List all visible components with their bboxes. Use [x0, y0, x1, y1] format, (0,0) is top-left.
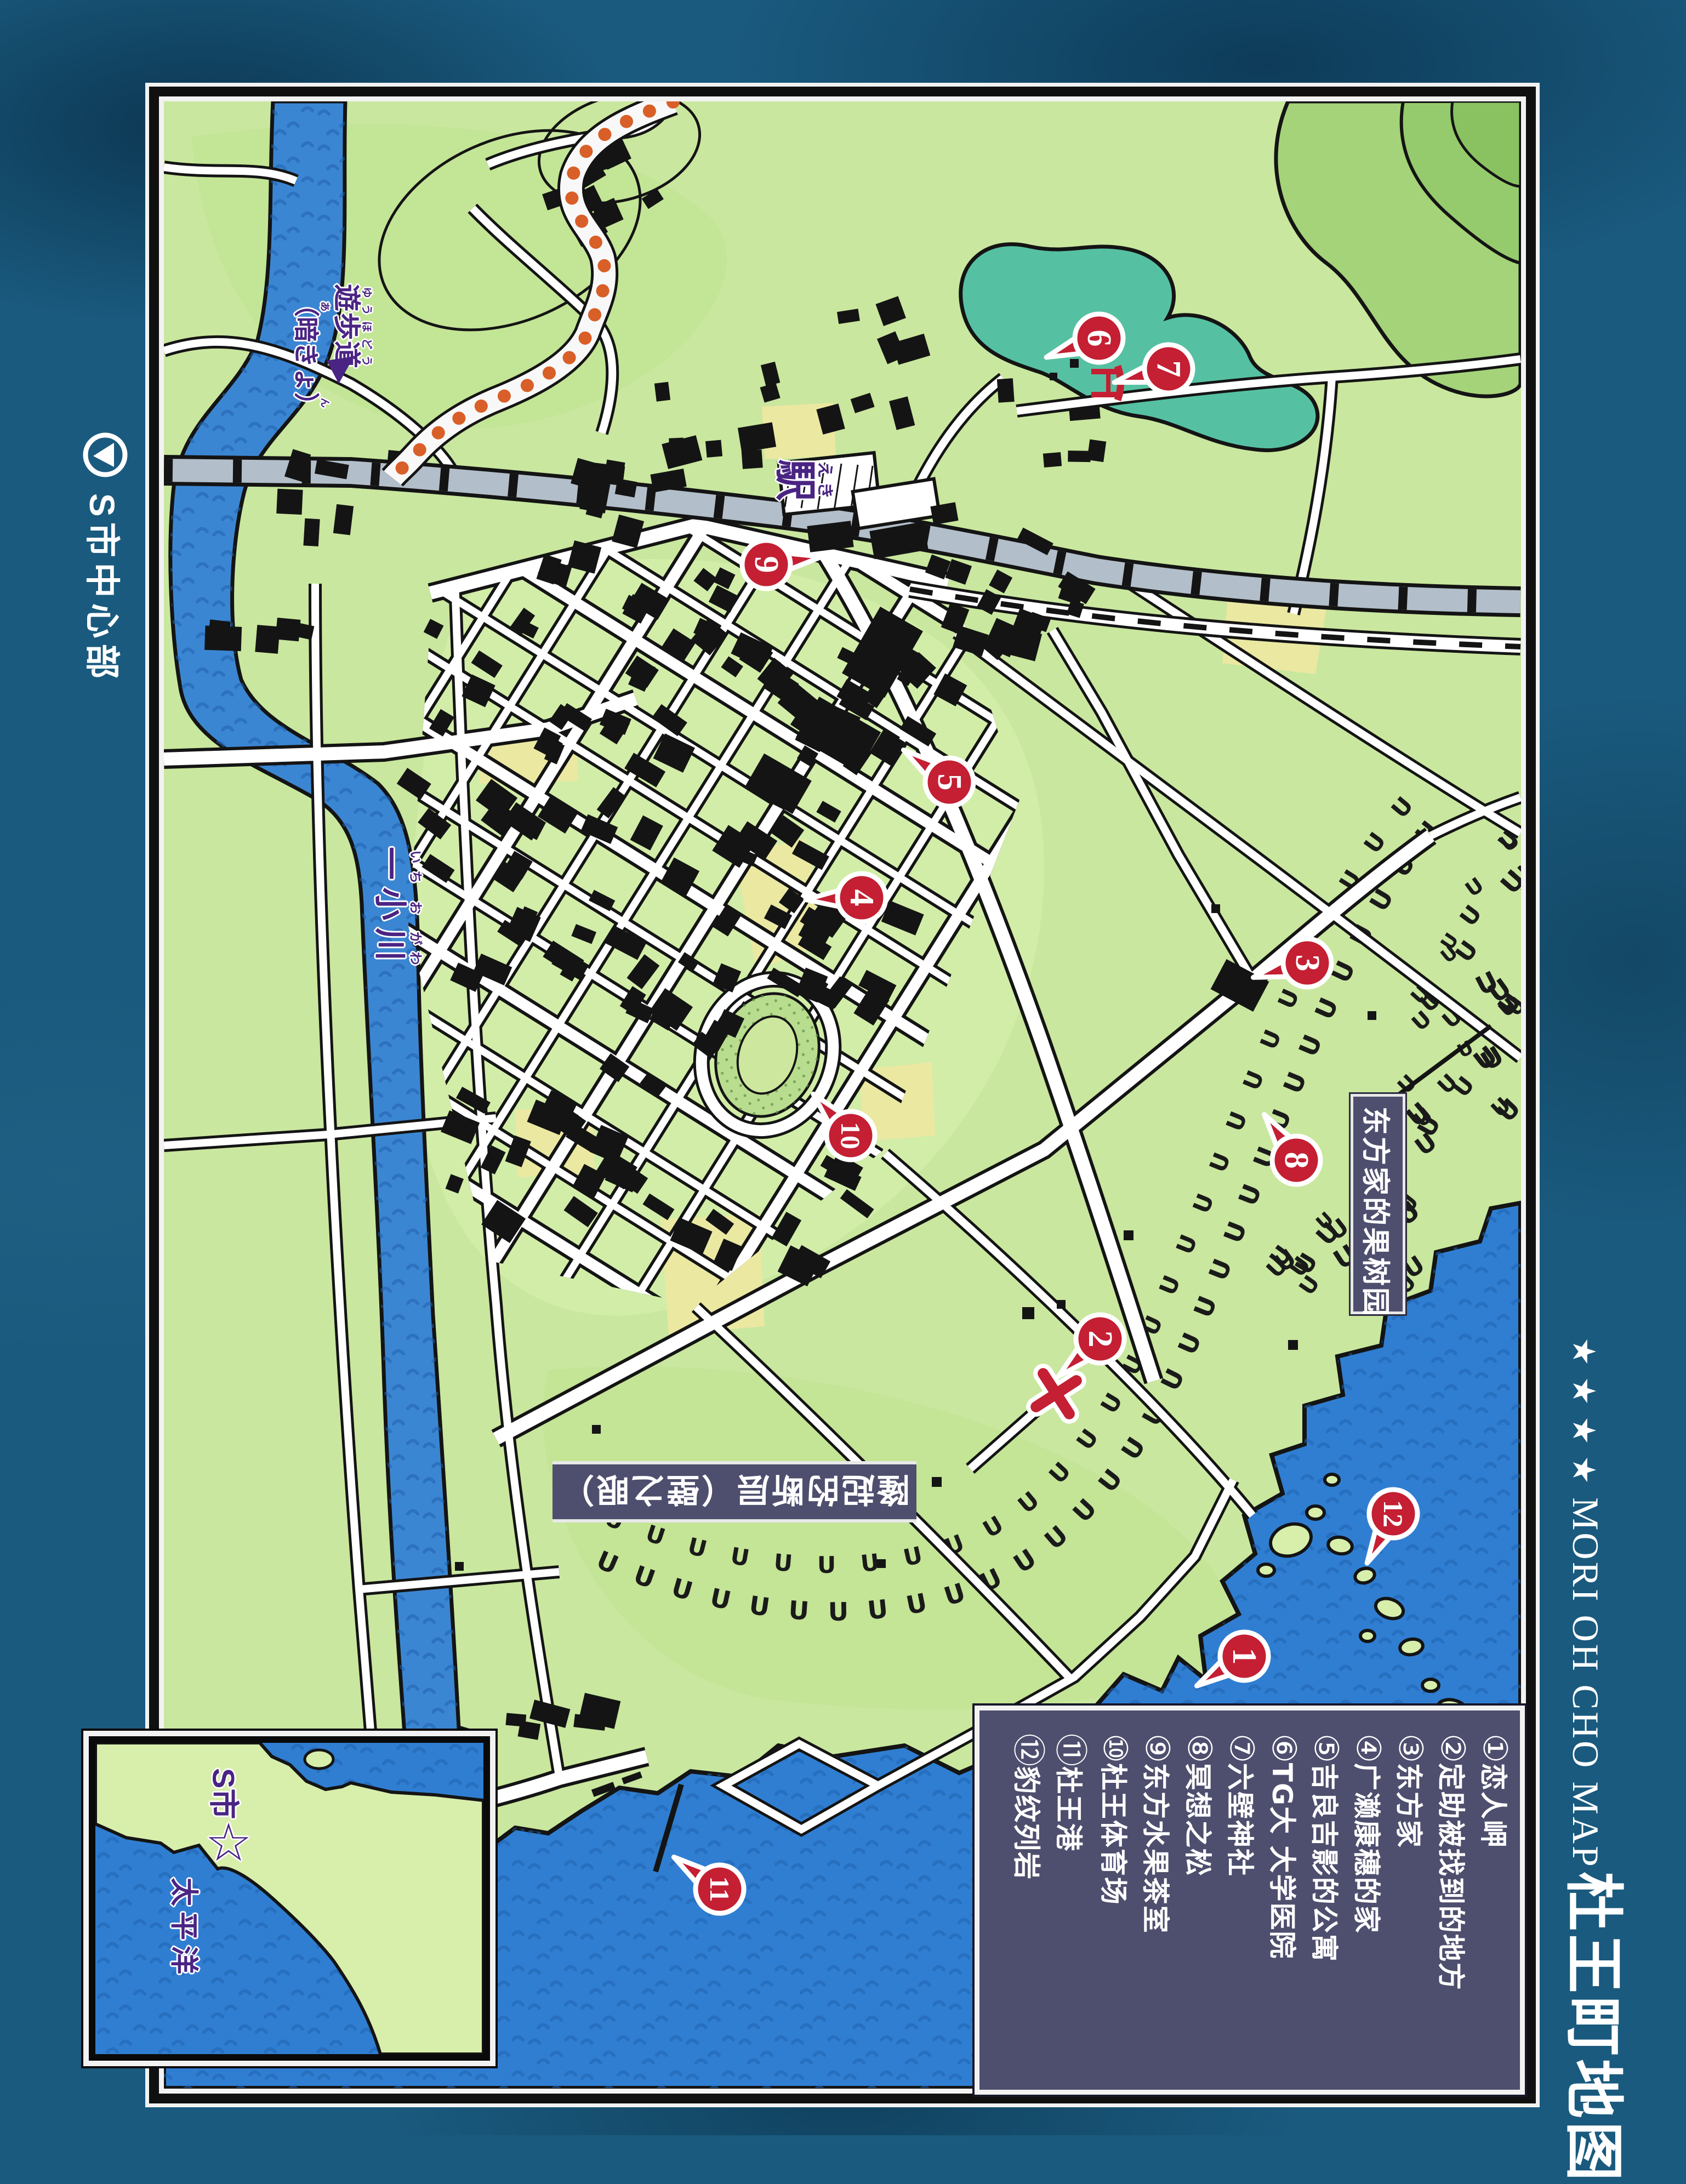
legend-item-12: ⑫豹纹列岩: [1007, 1733, 1055, 1880]
legend-label: 东方水果茶室: [1140, 1763, 1171, 1934]
marker-5: 5: [886, 719, 1012, 845]
legend-item-7: ⑦六壁神社: [1222, 1733, 1262, 1877]
legend-item-3: ③东方家: [1391, 1733, 1431, 1849]
legend-label: 恋人岬: [1477, 1763, 1509, 1849]
promenade-arrow-icon: [324, 355, 357, 386]
title-cjk: 杜王町地图: [1560, 1872, 1625, 2184]
legend-label: 冥想之松: [1182, 1763, 1214, 1877]
marker-number: 11: [704, 1876, 735, 1902]
legend-item-9: ⑨东方水果茶室: [1138, 1733, 1177, 1934]
legend-label: 杜王体育场: [1097, 1763, 1129, 1906]
legend-item-6: ⑥TG大 大学医院: [1264, 1733, 1304, 1959]
svg-text:U: U: [1516, 875, 1548, 909]
marker-number: 1: [1226, 1648, 1263, 1665]
legend-number: ④: [1349, 1733, 1387, 1763]
legend-number: ③: [1391, 1733, 1429, 1763]
marker-number: 9: [748, 556, 785, 573]
legend-item-11: ⑪杜王港: [1050, 1733, 1097, 1852]
svg-text:U: U: [1548, 875, 1576, 908]
svg-text:U: U: [1537, 933, 1573, 970]
morioh-map-poster: UUUUUUUUUUUUUUUUUUUUUUUUUUUUUUUUUUUUUUUU…: [0, 0, 1686, 2135]
legend-item-10: ⑩杜王体育场: [1096, 1733, 1135, 1906]
marker-4: 4: [799, 835, 925, 961]
legend-item-4: ④广濑康穗的家: [1349, 1733, 1388, 1934]
marker-1: 1: [1181, 1593, 1307, 1719]
title-roman: MORI OH CHO MAP: [1565, 1497, 1607, 1869]
legend-label: 广濑康穗的家: [1351, 1763, 1382, 1934]
marker-number: 8: [1278, 1152, 1315, 1169]
legend-number: ⑨: [1138, 1733, 1176, 1763]
marker-number: 2: [1081, 1331, 1119, 1348]
orchard-label: 东方家的果树园: [1358, 1107, 1399, 1318]
marker-2: 2: [1037, 1276, 1163, 1402]
legend-number: ⑥: [1264, 1733, 1303, 1763]
legend-number: ⑫: [1009, 1733, 1047, 1766]
legend-item-8: ⑧冥想之松: [1180, 1733, 1220, 1877]
legend-label: 杜王港: [1053, 1766, 1085, 1852]
marker-8: 8: [1233, 1097, 1359, 1223]
svg-text:U: U: [1568, 959, 1597, 987]
legend-number: ②: [1433, 1733, 1472, 1763]
inset-city-star: ☆: [205, 1812, 252, 1873]
legend-label: 吉良吉影的公寓: [1308, 1763, 1340, 1963]
svg-text:U: U: [1606, 888, 1638, 921]
inset-ocean-label: 太平洋: [166, 1878, 207, 1980]
marker-number: 12: [1378, 1500, 1409, 1527]
marker-number: 10: [835, 1122, 866, 1149]
marker-11: 11: [657, 1826, 783, 1952]
inset-island: [305, 1750, 333, 1769]
legend-number: ⑧: [1180, 1733, 1218, 1763]
river-label: 一小川いち お がわ: [369, 847, 423, 968]
station-label: 駅えき: [768, 459, 834, 501]
legend-number: ⑤: [1307, 1733, 1345, 1763]
marker-7: 7: [1106, 306, 1232, 432]
legend-number: ⑦: [1222, 1733, 1261, 1763]
s-city-center-label: S市中心部: [79, 493, 130, 685]
legend-label: 六壁神社: [1224, 1763, 1256, 1877]
legend: ①恋人岬②定助被找到的地方③东方家④广濑康穗的家⑤吉良吉影的公寓⑥TG大 大学医…: [975, 1706, 1525, 2095]
left-direction-icon: [81, 431, 129, 479]
svg-text:U: U: [1573, 939, 1603, 968]
marker-9: 9: [703, 501, 829, 628]
legend-item-5: ⑤吉良吉影的公寓: [1307, 1733, 1346, 1963]
legend-number: ⑩: [1096, 1733, 1134, 1763]
marker-number: 3: [1289, 955, 1326, 972]
legend-label: TG大 大学医院: [1266, 1763, 1298, 1960]
legend-number: ①: [1476, 1733, 1514, 1763]
fault-label: 隆起的断层（壁之眼）: [559, 1468, 910, 1516]
marker-number: 5: [931, 774, 968, 791]
marker-number: 7: [1150, 361, 1187, 378]
title-stars: ★★★★: [1566, 1337, 1602, 1495]
marker-number: 4: [843, 889, 880, 906]
legend-item-1: ①恋人岬: [1476, 1733, 1515, 1849]
marker-10: 10: [788, 1073, 914, 1199]
marker-3: 3: [1244, 900, 1370, 1026]
legend-item-2: ②定助被找到的地方: [1433, 1733, 1473, 1991]
svg-text:U: U: [1562, 917, 1593, 948]
svg-text:U: U: [1579, 925, 1614, 960]
marker-12: 12: [1330, 1451, 1456, 1577]
map-title: ★★★★ MORI OH CHO MAP 杜王町地图: [1556, 1337, 1641, 2184]
promenade-label-line2: （暗きょ）あん: [290, 292, 331, 418]
legend-label: 豹纹列岩: [1011, 1766, 1043, 1880]
inset-map: S市 ☆ 太平洋: [83, 1731, 495, 2066]
legend-label: 东方家: [1393, 1763, 1425, 1849]
legend-label: 定助被找到的地方: [1435, 1763, 1467, 1991]
legend-number: ⑪: [1051, 1733, 1090, 1766]
inset-canvas: [95, 1743, 483, 2054]
fault-label-bar: 隆起的断层（壁之眼）: [552, 1461, 916, 1522]
